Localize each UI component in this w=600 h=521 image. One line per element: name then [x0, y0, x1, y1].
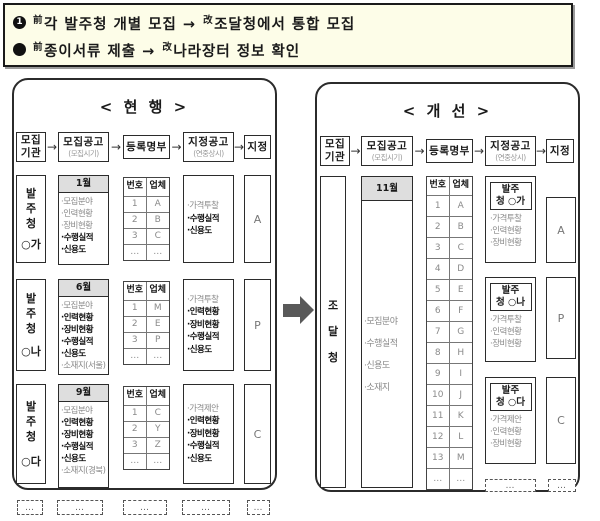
notice-box-jan: 1월 ·모집분야 ·인력현황 ·장비현황 ·수행실적 ·신용도: [58, 175, 109, 265]
result-letter: A: [254, 213, 262, 226]
notice-box-nov: 11월 ·모집분야 ·수행실적 ·신용도 ·소재지: [361, 176, 413, 488]
ellipsis-box: …: [17, 500, 43, 515]
agency-mini-label-line1: 발주: [491, 285, 531, 297]
improved-process-panel: < 개 선 > 모집 기관 → 모집공고 (모집시기) → 등록명부 → 지정공…: [315, 82, 580, 492]
designation-notice-box-row2: ·가격투찰 ·인력현황 ·장비현황 ·수행실적 ·신용도: [183, 279, 234, 371]
register-row: 11K: [427, 405, 472, 426]
register-cell: B: [147, 213, 170, 228]
register-row: 10J: [427, 384, 472, 405]
ellipsis-box: …: [57, 500, 103, 515]
flow-step-sublabel: (모집시기): [372, 153, 402, 163]
register-cell: 2: [124, 317, 147, 332]
register-cell: …: [124, 454, 147, 469]
designation-result-ga: A: [546, 197, 576, 263]
register-cell: …: [124, 349, 147, 364]
register-cell: F: [450, 301, 473, 321]
notice-item: ·인력현황: [61, 208, 107, 220]
register-cell: 1: [124, 406, 147, 421]
notice-item-list: ·모집분야 ·인력현황 ·장비현황 ·수행실적 ·신용도 ·소재지(경북): [59, 402, 108, 477]
criteria-item: ·가격투찰: [490, 213, 535, 225]
register-row: 1A: [124, 196, 169, 212]
register-row: 13M: [427, 447, 472, 468]
designation-notice-box-row1: ·가격투찰 ·수행실적 ·신용도: [183, 175, 234, 263]
register-row: 2E: [124, 316, 169, 332]
notice-item: ·장비현황: [61, 220, 107, 232]
criteria-item: ·신용도: [187, 225, 232, 238]
result-letter: A: [557, 224, 565, 237]
register-row: 3Z: [124, 437, 169, 453]
agency-box-na: 발주청 ○나: [16, 279, 46, 371]
designation-result-row1: A: [244, 175, 271, 263]
register-cell: 2: [124, 422, 147, 437]
designation-box-da: 발주 청 ○다 ·가격제안 ·인력현황 ·장비현황: [485, 377, 536, 464]
notice-item: ·장비현황: [61, 429, 107, 441]
register-row: 7G: [427, 321, 472, 342]
after-text: 조달청에서 통합 모집: [214, 17, 355, 33]
criteria-item: ·인력현황: [187, 415, 232, 428]
flow-arrow-icon: →: [234, 140, 244, 154]
flow-step-sublabel: (연중상시): [495, 153, 525, 163]
filled-circle-icon: [13, 43, 26, 56]
ellipsis-text: …: [201, 503, 211, 513]
designation-result-na: P: [546, 277, 576, 359]
register-cell: 4: [427, 259, 450, 279]
flow-step-notice: 모집공고 (모집시기): [58, 132, 109, 162]
register-cell: Z: [147, 438, 170, 453]
agency-name: ○다: [21, 453, 41, 469]
register-cell: 11: [427, 406, 450, 426]
flow-step-designation-notice: 지정공고 (연중상시): [485, 136, 536, 166]
register-cell: I: [450, 364, 473, 384]
flow-step-label: 지정공고: [188, 136, 229, 149]
ellipsis-text: …: [25, 503, 35, 513]
register-col-firm: 업체: [450, 177, 473, 195]
notice-item: ·인력현황: [61, 417, 107, 429]
ellipsis-text: …: [557, 481, 567, 491]
register-row: ……: [124, 453, 169, 469]
flow-step-agency: 모집 기관: [16, 132, 46, 162]
register-cell: J: [450, 385, 473, 405]
register-row: ……: [427, 468, 472, 489]
register-cell: 2: [427, 217, 450, 237]
register-cell: A: [147, 197, 170, 212]
before-superscript: 前: [33, 15, 43, 26]
designation-box-na: 발주 청 ○나 ·가격투찰 ·인력현황 ·장비현황: [485, 277, 536, 362]
register-cell: Y: [147, 422, 170, 437]
register-row: 12L: [427, 426, 472, 447]
notice-item: ·모집분야: [61, 300, 107, 312]
agency-box-ga: 발주청 ○가: [16, 175, 46, 263]
notice-item-list: ·모집분야 ·인력현황 ·장비현황 ·수행실적 ·신용도: [59, 193, 108, 256]
criteria-item: ·신용도: [187, 344, 232, 357]
agency-mini-label: 발주 청 ○가: [490, 182, 532, 210]
criteria-item: ·인력현황: [490, 326, 535, 338]
register-cell: A: [450, 196, 473, 216]
notice-item: ·소재지(서울): [61, 360, 107, 372]
result-letter: P: [558, 312, 565, 325]
register-cell: C: [147, 229, 170, 244]
agency-name: ○나: [21, 343, 41, 359]
flow-step-label: 지정: [550, 145, 570, 158]
register-cell: D: [450, 259, 473, 279]
criteria-item: ·인력현황: [187, 306, 232, 319]
flow-arrow-icon: →: [170, 140, 183, 154]
notice-item: ·소재지: [364, 377, 411, 399]
procurement-diagram: { "colors": { "note_background": "#FDFDE…: [0, 0, 600, 521]
flow-step-notice: 모집공고 (모집시기): [361, 136, 413, 166]
register-cell: 3: [124, 438, 147, 453]
criteria-item: ·장비현황: [490, 438, 535, 450]
notice-item: ·수행실적: [61, 336, 107, 348]
register-cell: G: [450, 322, 473, 342]
register-cell: …: [147, 454, 170, 469]
criteria-item: ·가격투찰: [187, 294, 232, 307]
agency-label: 발주청: [25, 291, 38, 336]
notice-item: ·인력현황: [61, 312, 107, 324]
register-row: 9I: [427, 363, 472, 384]
register-row: 2Y: [124, 421, 169, 437]
flow-arrow-icon: →: [413, 144, 426, 158]
before-text: 각 발주청 개별 모집 →: [44, 17, 196, 33]
register-cell: 1: [124, 301, 147, 316]
register-cell: 3: [427, 238, 450, 258]
register-table-row2: 번호 업체 1M 2E 3P ……: [123, 281, 170, 365]
register-table-improved: 번호 업체 1A 2B 3C 4D 5E 6F 7G 8H 9I 10J 11K…: [426, 176, 473, 490]
ellipsis-text: …: [506, 481, 516, 491]
notice-item: ·수행실적: [61, 232, 107, 244]
agency-mini-label-line2: 청 ○나: [491, 297, 531, 309]
criteria-item: ·인력현황: [490, 225, 535, 237]
register-cell: …: [147, 245, 170, 260]
month-label: 1월: [59, 176, 108, 193]
register-cell: …: [147, 349, 170, 364]
before-text: 종이서류 제출 →: [44, 44, 155, 60]
agency-label: 조달청: [327, 293, 340, 371]
improvement-arrow-icon: [300, 296, 314, 324]
agency-mini-label: 발주 청 ○나: [490, 283, 532, 311]
register-cell: …: [450, 469, 473, 489]
notice-item: ·모집분야: [61, 196, 107, 208]
designation-notice-box-row3: ·가격제안 ·인력현황 ·장비현황 ·수행실적 ·신용도: [183, 384, 234, 484]
register-col-no: 번호: [124, 387, 147, 405]
criteria-item: ·장비현황: [490, 338, 535, 350]
summary-note: 1 前각 발주청 개별 모집 →改조달청에서 통합 모집 前종이서류 제출 →改…: [3, 3, 573, 67]
register-cell: 10: [427, 385, 450, 405]
criteria-item: ·수행실적: [187, 213, 232, 226]
criteria-list: ·가격투찰 ·인력현황 ·장비현황: [486, 213, 535, 249]
agency-box-da: 발주청 ○다: [16, 384, 46, 484]
register-cell: 12: [427, 427, 450, 447]
register-cell: E: [147, 317, 170, 332]
register-col-firm: 업체: [147, 387, 170, 405]
register-row: 3C: [124, 228, 169, 244]
flow-step-label: 지정: [247, 141, 267, 154]
ellipsis-box: …: [247, 500, 270, 515]
register-cell: M: [450, 448, 473, 468]
register-col-no: 번호: [124, 282, 147, 300]
result-letter: C: [254, 428, 262, 441]
agency-label: 발주청: [25, 186, 38, 231]
register-cell: 2: [124, 213, 147, 228]
agency-box-pps: 조달청: [320, 176, 346, 488]
criteria-item: ·가격제안: [187, 403, 232, 416]
month-label: 11월: [362, 177, 412, 201]
flow-step-designation-notice: 지정공고 (연중상시): [183, 132, 234, 162]
register-header-row: 번호 업체: [124, 387, 169, 405]
before-superscript: 前: [33, 42, 43, 53]
flow-arrow-icon: →: [109, 140, 123, 154]
designation-result-row2: P: [244, 279, 271, 371]
register-row: 1A: [427, 195, 472, 216]
register-row: 5E: [427, 279, 472, 300]
register-header-row: 번호 업체: [124, 282, 169, 300]
agency-mini-label-line2: 청 ○가: [491, 196, 531, 208]
register-cell: 8: [427, 343, 450, 363]
register-table-row3: 번호 업체 1C 2Y 3Z ……: [123, 386, 170, 470]
register-cell: 1: [427, 196, 450, 216]
flow-step-label: 기관: [21, 147, 41, 160]
register-col-firm: 업체: [147, 178, 170, 196]
register-cell: 3: [124, 333, 147, 348]
agency-mini-label-line2: 청 ○다: [491, 397, 531, 409]
designation-box-ga: 발주 청 ○가 ·가격투찰 ·인력현황 ·장비현황: [485, 176, 536, 263]
flow-step-sublabel: (모집시기): [68, 149, 98, 159]
register-cell: 9: [427, 364, 450, 384]
agency-name: ○가: [21, 236, 41, 252]
register-cell: 1: [124, 197, 147, 212]
register-cell: C: [147, 406, 170, 421]
register-cell: K: [450, 406, 473, 426]
flow-step-designation: 지정: [244, 135, 271, 159]
criteria-list: ·가격투찰 ·인력현황 ·장비현황: [486, 314, 535, 350]
register-header-row: 번호 업체: [427, 177, 472, 195]
ellipsis-text: …: [254, 503, 264, 513]
register-cell: 3: [124, 229, 147, 244]
notice-item-list: ·모집분야 ·수행실적 ·신용도 ·소재지: [362, 201, 412, 399]
notice-box-sep: 9월 ·모집분야 ·인력현황 ·장비현황 ·수행실적 ·신용도 ·소재지(경북): [58, 384, 109, 488]
note-bullet-1: 1 前각 발주청 개별 모집 →改조달청에서 통합 모집: [13, 12, 561, 39]
register-row: 1M: [124, 300, 169, 316]
result-letter: C: [557, 414, 565, 427]
criteria-item: ·수행실적: [187, 440, 232, 453]
notice-item: ·신용도: [61, 348, 107, 360]
register-cell: 7: [427, 322, 450, 342]
current-process-panel: < 현 행 > 모집 기관 → 모집공고 (모집시기) → 등록명부 → 지정공…: [12, 78, 277, 490]
note-bullet-2-text: 前종이서류 제출 →改나라장터 정보 확인: [33, 39, 300, 61]
criteria-item: ·수행실적: [187, 331, 232, 344]
designation-result-da: C: [546, 377, 576, 464]
agency-label: 발주청: [25, 399, 38, 444]
criteria-item: ·가격투찰: [490, 314, 535, 326]
after-superscript: 改: [203, 15, 213, 26]
after-superscript: 改: [162, 42, 172, 53]
register-cell: 5: [427, 280, 450, 300]
register-header-row: 번호 업체: [124, 178, 169, 196]
register-col-firm: 업체: [147, 282, 170, 300]
notice-box-jun: 6월 ·모집분야 ·인력현황 ·장비현황 ·수행실적 ·신용도 ·소재지(서울): [58, 279, 109, 375]
panel-title-current: < 현 행 >: [14, 96, 275, 117]
register-cell: L: [450, 427, 473, 447]
criteria-item: ·신용도: [187, 453, 232, 466]
flow-step-label: 모집: [21, 134, 41, 147]
criteria-item: ·장비현황: [187, 319, 232, 332]
circled-number-icon: 1: [13, 16, 26, 29]
ellipsis-box: …: [548, 479, 576, 492]
flow-step-register: 등록명부: [426, 139, 473, 163]
note-bullet-1-text: 前각 발주청 개별 모집 →改조달청에서 통합 모집: [33, 12, 355, 34]
notice-item: ·신용도: [61, 244, 107, 256]
register-row: 3P: [124, 332, 169, 348]
notice-item: ·소재지(경북): [61, 465, 107, 477]
register-cell: B: [450, 217, 473, 237]
register-row: 2B: [427, 216, 472, 237]
ellipsis-box: …: [485, 479, 536, 492]
ellipsis-text: …: [140, 503, 150, 513]
flow-step-label: 모집공고: [367, 140, 408, 153]
month-label: 6월: [59, 280, 108, 297]
flow-step-designation: 지정: [546, 139, 574, 163]
register-cell: E: [450, 280, 473, 300]
register-col-no: 번호: [427, 177, 450, 195]
agency-mini-label: 발주 청 ○다: [490, 383, 532, 411]
notice-item: ·수행실적: [61, 441, 107, 453]
agency-mini-label-line1: 발주: [491, 385, 531, 397]
ellipsis-text: …: [75, 503, 85, 513]
register-cell: 6: [427, 301, 450, 321]
register-cell: H: [450, 343, 473, 363]
flow-step-sublabel: (연중상시): [193, 149, 223, 159]
improvement-arrow-icon: [283, 304, 301, 317]
register-row: ……: [124, 348, 169, 364]
notice-item: ·수행실적: [364, 333, 411, 355]
notice-item-list: ·모집분야 ·인력현황 ·장비현황 ·수행실적 ·신용도 ·소재지(서울): [59, 297, 108, 372]
flow-step-agency: 모집 기관: [320, 136, 350, 166]
register-row: 2B: [124, 212, 169, 228]
note-bullet-2: 前종이서류 제출 →改나라장터 정보 확인: [13, 39, 561, 66]
notice-item: ·장비현황: [61, 324, 107, 336]
panel-title-improved: < 개 선 >: [317, 100, 578, 121]
flow-step-label: 모집: [325, 138, 345, 151]
agency-mini-label-line1: 발주: [491, 184, 531, 196]
flow-arrow-icon: →: [536, 144, 546, 158]
flow-arrow-icon: →: [46, 140, 58, 154]
flow-step-register: 등록명부: [123, 135, 170, 159]
register-cell: …: [124, 245, 147, 260]
register-cell: …: [427, 469, 450, 489]
flow-arrow-icon: →: [350, 144, 361, 158]
register-row: 8H: [427, 342, 472, 363]
flow-step-label: 모집공고: [63, 136, 104, 149]
criteria-item: ·장비현황: [490, 237, 535, 249]
ellipsis-box: …: [123, 500, 167, 515]
designation-result-row3: C: [244, 384, 271, 484]
criteria-item: ·가격투찰: [187, 200, 232, 213]
flow-step-label: 지정공고: [490, 140, 531, 153]
flow-step-label: 등록명부: [429, 145, 470, 158]
register-row: 3C: [427, 237, 472, 258]
after-text: 나라장터 정보 확인: [173, 44, 300, 60]
register-table-row1: 번호 업체 1A 2B 3C ……: [123, 177, 170, 261]
result-letter: P: [254, 319, 261, 332]
register-col-no: 번호: [124, 178, 147, 196]
register-row: 4D: [427, 258, 472, 279]
register-cell: C: [450, 238, 473, 258]
criteria-item: ·인력현황: [490, 426, 535, 438]
register-row: ……: [124, 244, 169, 260]
notice-item: ·신용도: [364, 355, 411, 377]
notice-item: ·모집분야: [364, 311, 411, 333]
notice-item: ·모집분야: [61, 405, 107, 417]
register-cell: M: [147, 301, 170, 316]
criteria-item: ·장비현황: [187, 428, 232, 441]
criteria-item: ·가격제안: [490, 414, 535, 426]
register-cell: P: [147, 333, 170, 348]
register-row: 1C: [124, 405, 169, 421]
ellipsis-box: …: [182, 500, 230, 515]
criteria-list: ·가격제안 ·인력현황 ·장비현황: [486, 414, 535, 450]
flow-step-label: 기관: [325, 151, 345, 164]
register-cell: 13: [427, 448, 450, 468]
flow-arrow-icon: →: [473, 144, 485, 158]
notice-item: ·신용도: [61, 453, 107, 465]
register-row: 6F: [427, 300, 472, 321]
month-label: 9월: [59, 385, 108, 402]
flow-step-label: 등록명부: [126, 141, 167, 154]
